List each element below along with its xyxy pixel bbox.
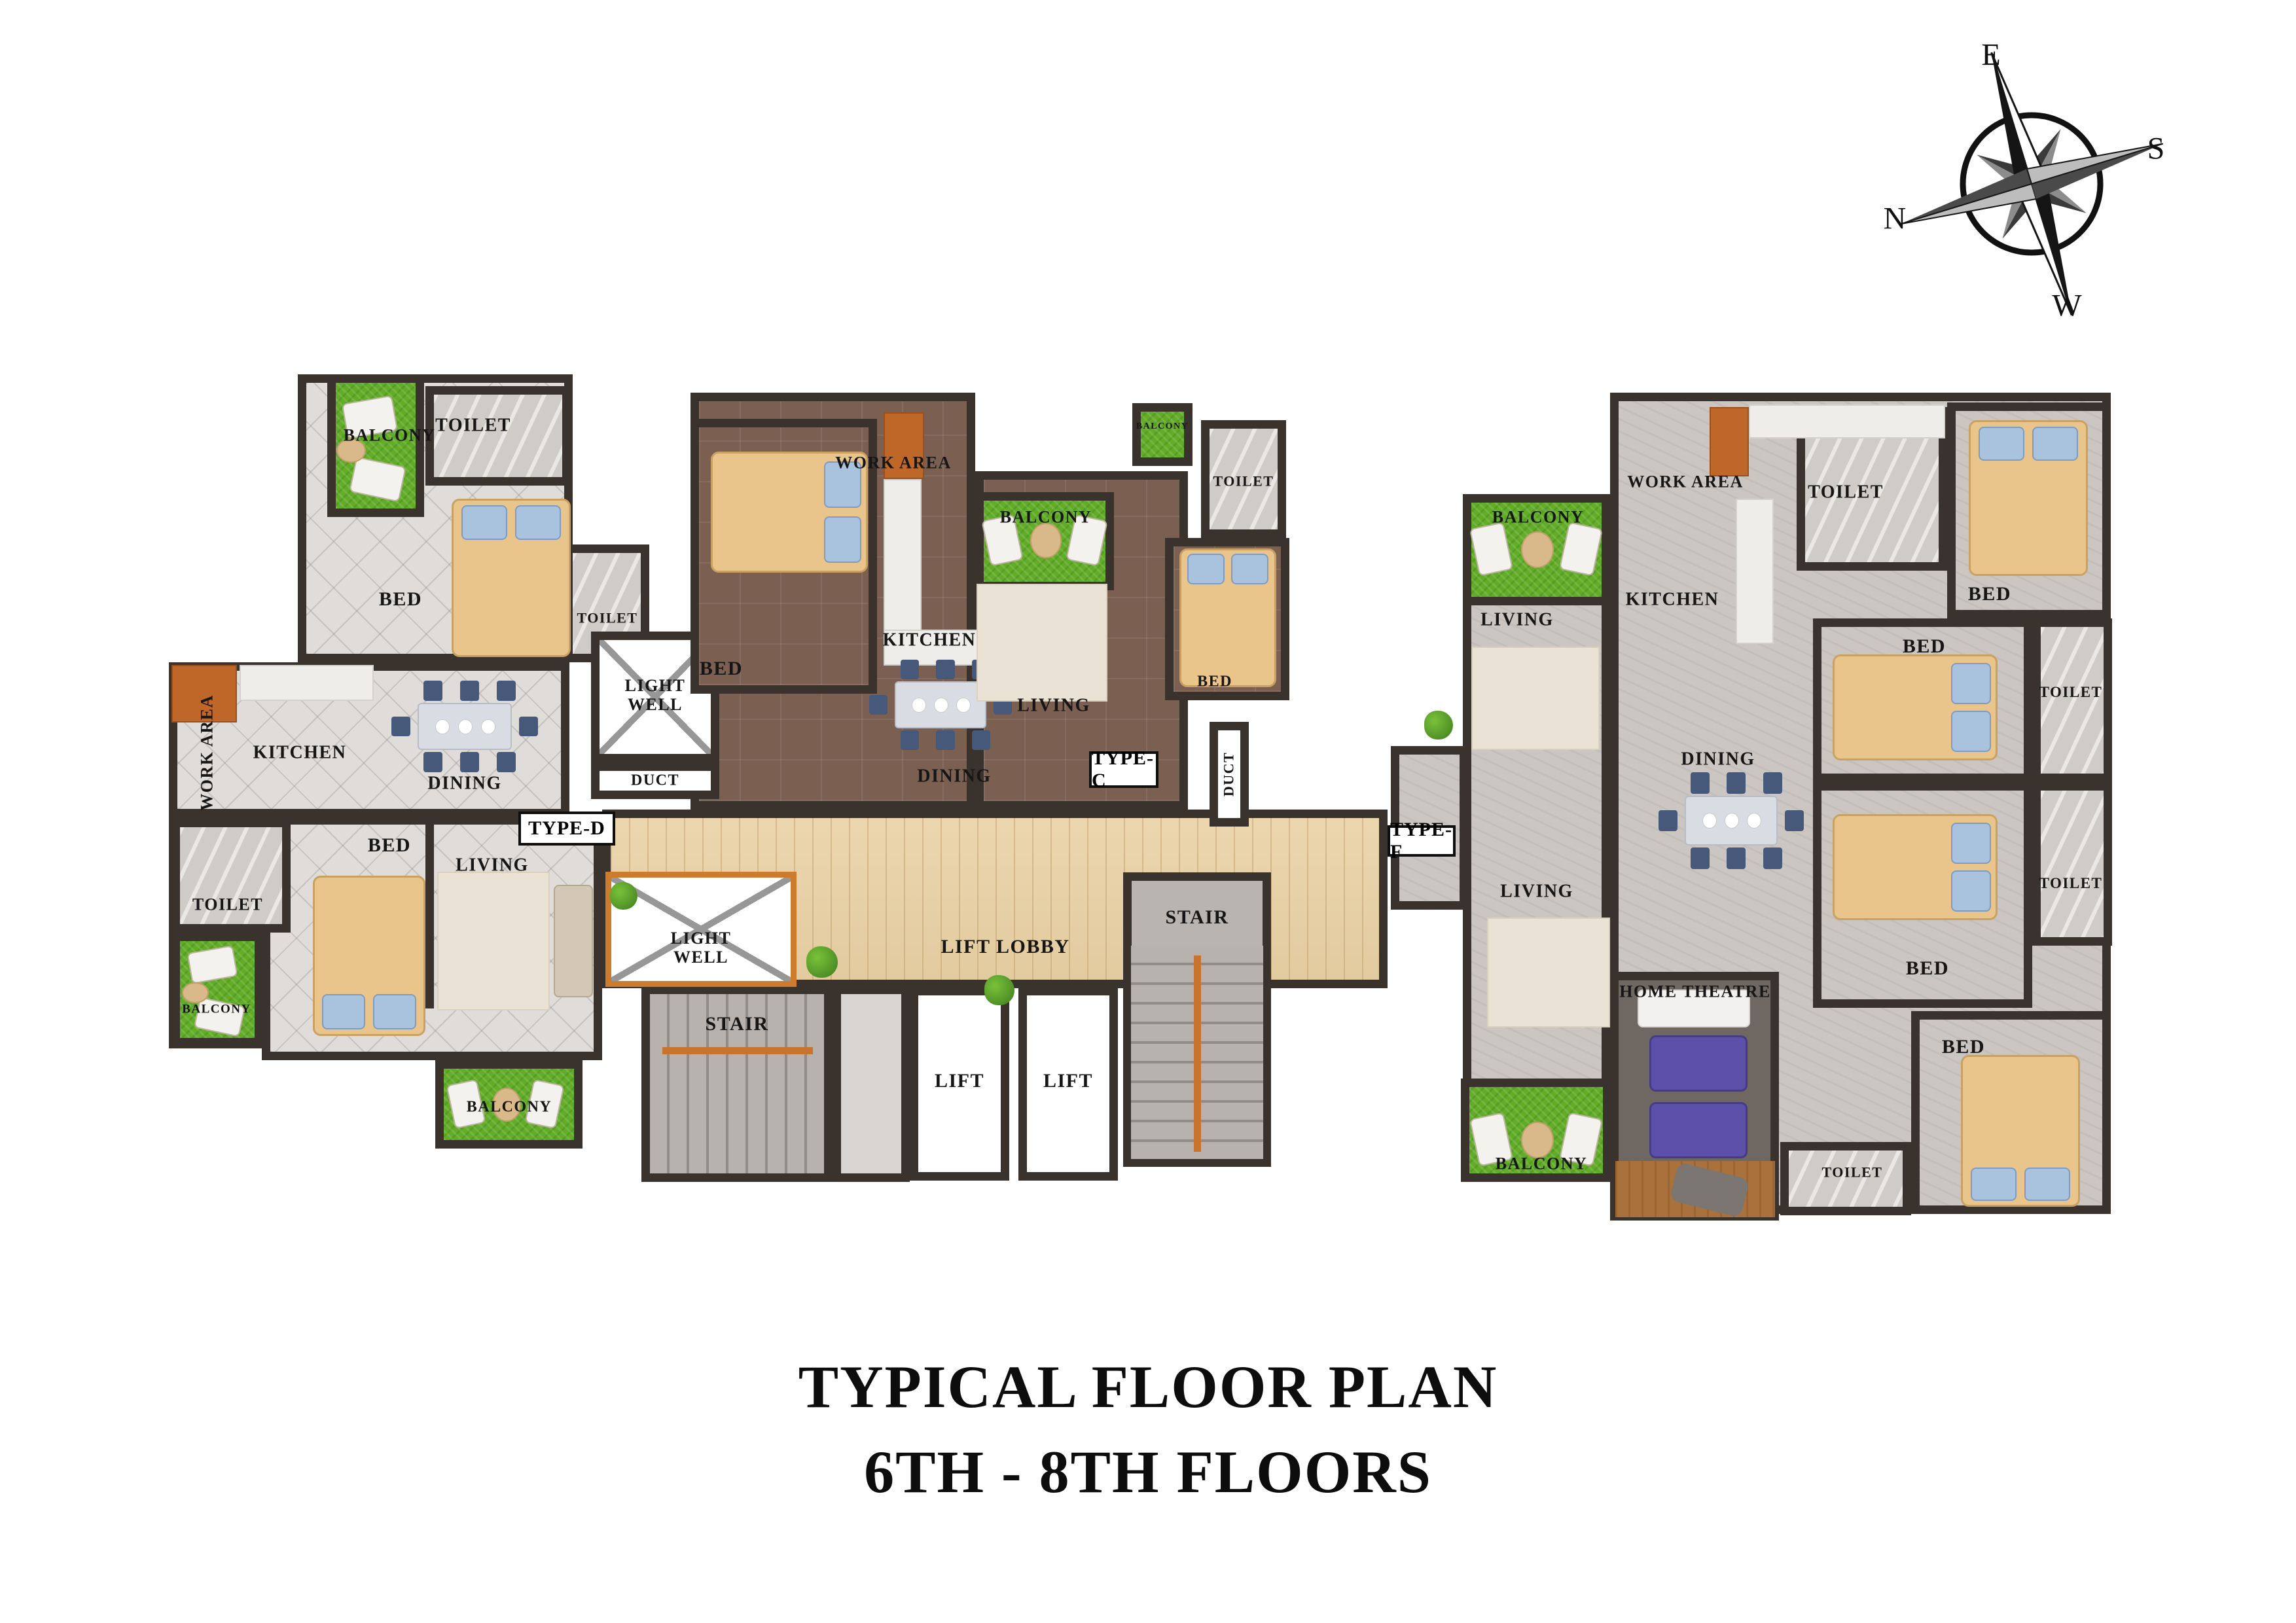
balcony-c-small xyxy=(1132,403,1193,466)
room-label: DINING xyxy=(427,773,501,793)
pillow xyxy=(1187,554,1225,584)
compass-letter-n: N xyxy=(1884,201,1907,237)
balcony-furniture xyxy=(181,949,251,1033)
dining-chair xyxy=(1727,847,1746,869)
bed-pillows xyxy=(824,461,862,563)
room-label: HOME THEATRE xyxy=(1619,982,1771,1001)
room-label: BED xyxy=(368,834,411,857)
pillow xyxy=(2024,1168,2070,1201)
compass-letter-e: E xyxy=(1981,37,2000,73)
pillow xyxy=(2032,427,2078,461)
dining-chair xyxy=(1785,810,1804,832)
pillow xyxy=(322,994,365,1029)
area-rug xyxy=(977,584,1107,702)
room-label: BED xyxy=(1197,673,1232,691)
room-label: BED xyxy=(1903,635,1946,658)
room-label: BALCONY xyxy=(1496,1154,1588,1173)
room-label: TOILET xyxy=(2039,684,2103,701)
partition-wall xyxy=(425,819,434,1008)
pillow xyxy=(515,505,561,540)
balcony-chair xyxy=(1469,522,1514,576)
room-label: TOILET xyxy=(1822,1165,1883,1181)
unit-type-tag: TYPE-D xyxy=(518,811,615,846)
room-label: LIFT LOBBY xyxy=(941,936,1069,958)
dining-chair xyxy=(901,730,919,750)
unit-type-tag: TYPE-C xyxy=(1089,751,1158,788)
room-label: WORK AREA xyxy=(835,453,951,472)
stair-vestibule xyxy=(833,986,910,1182)
balcony-furniture xyxy=(335,399,414,497)
bed-furniture xyxy=(313,876,425,1036)
balcony-table xyxy=(182,982,209,1003)
kitchen-counter xyxy=(1710,407,1749,476)
balcony-chair xyxy=(350,456,407,502)
room-label: TOILET xyxy=(435,415,511,435)
room-label: TOILET xyxy=(1808,482,1884,502)
kitchen-counter xyxy=(884,479,922,636)
pillow xyxy=(824,516,862,563)
bed-furniture xyxy=(1833,654,1998,760)
dining-plate xyxy=(912,698,926,713)
dining-plate xyxy=(1702,813,1717,829)
plan-title-line1: TYPICAL FLOOR PLAN xyxy=(0,1352,2296,1421)
dining-chair xyxy=(972,730,990,750)
room-label: BALCONY xyxy=(182,1002,251,1016)
room-label: STAIR xyxy=(706,1013,769,1035)
bed-pillows xyxy=(322,994,417,1029)
bed-pillows xyxy=(461,505,562,540)
dining-chair xyxy=(1763,847,1782,869)
room-label: LIVING xyxy=(1017,695,1090,715)
unit-type-tag: TYPE-F xyxy=(1388,825,1456,857)
room-label: LIVING xyxy=(1480,609,1554,630)
dining-chair xyxy=(423,752,442,772)
bed-pillows xyxy=(1951,663,1990,752)
dining-set xyxy=(1659,772,1804,869)
bed-pillows xyxy=(1951,823,1990,912)
bed-pillows xyxy=(1971,1168,2071,1201)
room-label: BALCONY xyxy=(344,425,436,444)
stair-handrail xyxy=(1194,955,1201,1152)
dining-chair xyxy=(391,717,410,737)
room-label: WORK AREA xyxy=(197,694,216,810)
dining-chair xyxy=(936,730,954,750)
room-label: BED xyxy=(1942,1036,1985,1058)
room-label: BALCONY xyxy=(467,1099,552,1116)
stair-handrail xyxy=(662,1047,813,1054)
home-theatre-recliner xyxy=(1649,1035,1748,1092)
balcony-table xyxy=(1521,1122,1554,1158)
room-label: KITCHEN xyxy=(1626,589,1719,609)
dining-chair xyxy=(497,681,516,701)
room-label: BED xyxy=(700,658,743,680)
dining-chair xyxy=(1763,772,1782,794)
room-label: BALCONY xyxy=(1492,507,1585,526)
balcony-chair xyxy=(1559,522,1604,576)
dining-chair xyxy=(460,681,479,701)
room-label: DINING xyxy=(1681,749,1755,769)
area-rug xyxy=(437,872,550,1010)
dining-chair xyxy=(936,660,954,679)
area-rug xyxy=(1487,918,1610,1027)
bed-furniture xyxy=(1179,548,1276,687)
floor-plan-canvas: BALCONYTOILETBEDTOILETWORK AREAKITCHENDI… xyxy=(0,0,2296,1623)
room-label: BALCONY xyxy=(1136,421,1189,432)
room-label: WORK AREA xyxy=(1627,472,1743,491)
compass-rose: E S N W xyxy=(1872,13,2186,340)
compass-rose-graphic xyxy=(1872,13,2186,340)
dining-chair xyxy=(1659,810,1677,832)
room-label: DINING xyxy=(917,766,991,786)
bed-pillows xyxy=(1187,554,1268,584)
potted-plant xyxy=(1424,711,1453,740)
dining-plate xyxy=(435,719,450,734)
toilet-d-bottom xyxy=(171,819,291,933)
bed-pillows xyxy=(1979,427,2079,461)
room-label: KITCHEN xyxy=(253,742,347,762)
potted-plant xyxy=(984,975,1014,1005)
room-label: LIFT xyxy=(935,1070,984,1092)
room-label: BED xyxy=(1906,957,1949,980)
pillow xyxy=(461,505,507,540)
dining-set xyxy=(391,681,538,772)
room-label: BED xyxy=(379,588,422,611)
pillow xyxy=(373,994,416,1029)
dining-chair xyxy=(497,752,516,772)
room-label: LIFT xyxy=(1043,1070,1093,1092)
pillow xyxy=(1971,1168,2017,1201)
room-label: LIGHT WELL xyxy=(671,929,732,967)
room-label: BALCONY xyxy=(1000,507,1092,526)
room-label: TOILET xyxy=(192,895,263,914)
room-label: TOILET xyxy=(577,611,638,627)
home-theatre-recliner xyxy=(1649,1102,1748,1158)
kitchen-counter xyxy=(240,665,374,701)
bed-furniture xyxy=(1961,1055,2080,1207)
bed-furniture xyxy=(1833,814,1998,920)
balcony-chair xyxy=(187,945,238,984)
kitchen-counter xyxy=(1749,404,1945,438)
dining-plate xyxy=(956,698,971,713)
area-rug xyxy=(1471,647,1600,750)
pillow xyxy=(1979,427,2024,461)
room-label: STAIR xyxy=(1166,906,1229,929)
room-label: BED xyxy=(1968,583,2011,605)
dining-chair xyxy=(1691,847,1710,869)
room-label: LIGHT WELL xyxy=(625,676,686,714)
room-label: LIVING xyxy=(1500,881,1573,901)
balcony-furniture xyxy=(1474,517,1598,582)
room-label: KITCHEN xyxy=(883,630,977,650)
pillow xyxy=(1951,870,1990,912)
toilet-f-2 xyxy=(2032,782,2112,946)
room-label: LIVING xyxy=(456,855,529,875)
plan-title-line2: 6TH - 8TH FLOORS xyxy=(0,1437,2296,1507)
dining-plate xyxy=(458,719,473,734)
kitchen-counter xyxy=(1736,499,1774,644)
bed-furniture xyxy=(452,499,571,657)
sofa xyxy=(554,885,593,997)
room-label: TOILET xyxy=(1213,474,1274,490)
bed-furniture xyxy=(1969,420,2088,576)
dining-chair xyxy=(901,660,919,679)
potted-plant xyxy=(806,946,838,978)
dining-chair xyxy=(869,695,888,715)
dining-chair xyxy=(1691,772,1710,794)
dining-chair xyxy=(519,717,538,737)
balcony-table xyxy=(1521,531,1554,568)
dining-chair xyxy=(1727,772,1746,794)
compass-letter-s: S xyxy=(2147,131,2165,167)
pillow xyxy=(1951,663,1990,704)
dining-chair xyxy=(423,681,442,701)
dining-plate xyxy=(481,719,495,734)
pillow xyxy=(1951,711,1990,752)
toilet-d-top xyxy=(425,386,571,486)
balcony-table xyxy=(1030,523,1061,558)
pillow xyxy=(1231,554,1268,584)
compass-letter-w: W xyxy=(2052,288,2081,324)
pillow xyxy=(1951,823,1990,864)
dining-chair xyxy=(460,752,479,772)
dining-plate xyxy=(934,698,948,713)
room-label: DUCT xyxy=(1221,752,1238,796)
potted-plant xyxy=(610,882,637,910)
room-label: TOILET xyxy=(2039,875,2103,892)
room-label: DUCT xyxy=(631,772,679,790)
